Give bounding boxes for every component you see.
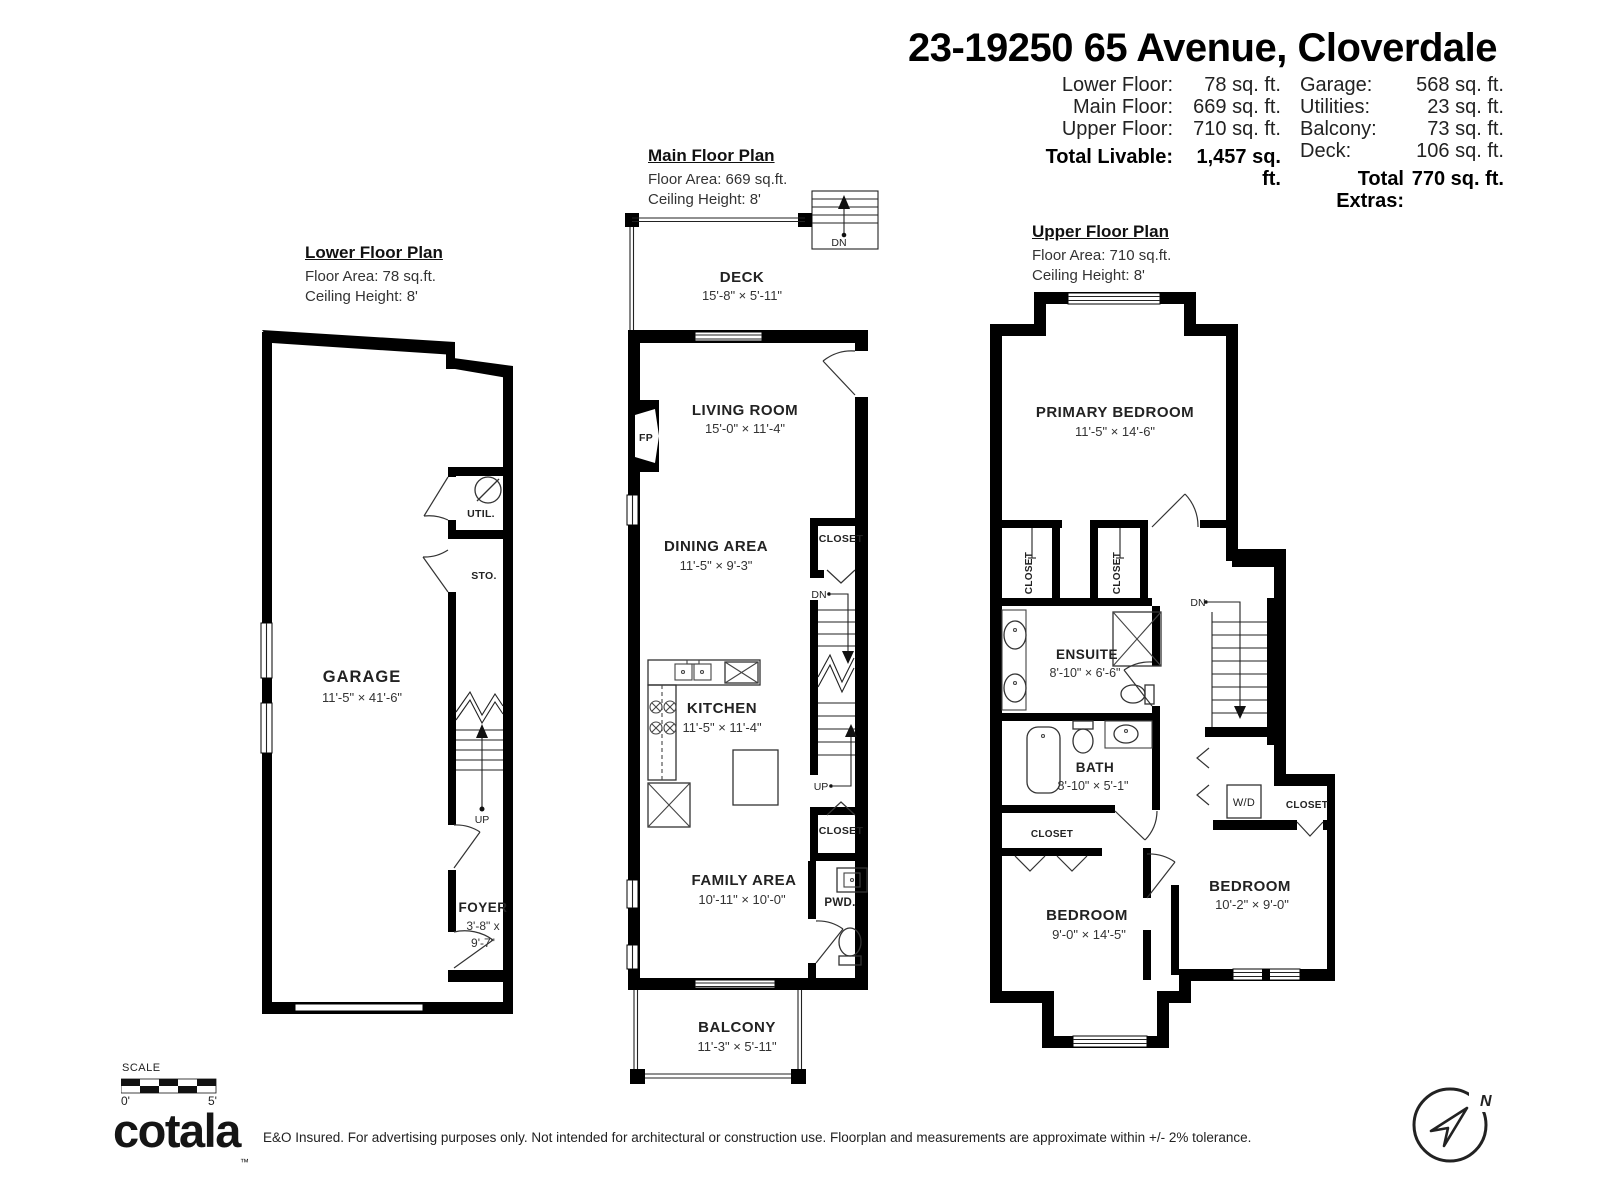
svg-text:9'-7": 9'-7" [471, 936, 495, 950]
svg-text:8'-10" × 6'-6": 8'-10" × 6'-6" [1050, 666, 1121, 680]
sto-label: STO. [471, 570, 497, 582]
summary-row: Balcony:73 sq. ft. [1300, 118, 1504, 140]
lower-plan-title: Lower Floor Plan [305, 243, 443, 263]
foyer-label: FOYER [458, 900, 507, 915]
svg-text:11'-3" × 5'-11": 11'-3" × 5'-11" [697, 1039, 777, 1054]
water-heater-icon [475, 477, 501, 503]
balcony-label: BALCONY [698, 1019, 776, 1036]
util-label: UTIL. [467, 508, 495, 520]
living-room-label: LIVING ROOM [692, 402, 798, 419]
compass-north-label: N [1480, 1093, 1492, 1110]
scale-bar [121, 1077, 221, 1095]
wd-label: W/D [1233, 797, 1255, 809]
main-floor-plan: DN FP [615, 185, 885, 1100]
svg-text:10'-2" × 9'-0": 10'-2" × 9'-0" [1215, 897, 1289, 912]
bedroom-left-label: BEDROOM [1046, 907, 1128, 924]
main-top-exterior-stairs: DN [812, 191, 878, 249]
deck-label: DECK [720, 269, 765, 286]
bath-label: BATH [1076, 760, 1115, 775]
lower-plan-header: Lower Floor Plan Floor Area: 78 sq.ft. C… [305, 243, 443, 307]
main-plan-title: Main Floor Plan [648, 146, 787, 166]
disclaimer-text: E&O Insured. For advertising purposes on… [263, 1130, 1313, 1145]
stairs-dn-label: DN [1190, 597, 1205, 609]
upper-plan-header: Upper Floor Plan Floor Area: 710 sq.ft. … [1032, 222, 1171, 286]
closet-c-label: CLOSET [1031, 829, 1073, 840]
svg-text:8'-10" × 5'-1": 8'-10" × 5'-1" [1058, 779, 1129, 793]
main-stairs [818, 592, 857, 788]
summary-row: Utilities:23 sq. ft. [1300, 96, 1504, 118]
total-livable-row: Total Livable:1,457 sq. ft. [1005, 146, 1281, 190]
svg-text:11'-5" × 11'-4": 11'-5" × 11'-4" [682, 720, 762, 735]
stairs-up-label: UP [475, 814, 490, 826]
svg-text:15'-8" × 5'-11": 15'-8" × 5'-11" [702, 288, 782, 303]
bedroom-right-label: BEDROOM [1209, 878, 1291, 895]
summary-row: Main Floor:669 sq. ft. [1005, 96, 1281, 118]
upper-plan-title: Upper Floor Plan [1032, 222, 1171, 242]
dining-area-label: DINING AREA [664, 538, 768, 555]
upper-floor-plan: W/D PRIMARY BEDROOM 11'-5" × 14'-6" CLOS… [985, 290, 1335, 1080]
svg-text:10'-11" × 10'-0": 10'-11" × 10'-0" [698, 892, 786, 907]
lower-floor-plan: GARAGE 11'-5" × 41'-6" UTIL. STO. UP FOY… [250, 320, 530, 1020]
family-area-label: FAMILY AREA [692, 872, 797, 889]
balcony-railing [630, 990, 806, 1084]
kitchen-fixtures [648, 660, 778, 827]
area-summary-extras: Garage:568 sq. ft. Utilities:23 sq. ft. … [1300, 74, 1504, 212]
cotala-logo: cotala™ [113, 1103, 249, 1167]
closet-b-label: CLOSET [1112, 552, 1123, 594]
closet-a-label: CLOSET [1024, 552, 1035, 594]
total-extras-row: Total Extras:770 sq. ft. [1300, 168, 1504, 212]
fireplace-label: FP [639, 432, 653, 444]
main-room-labels: DECK 15'-8" × 5'-11" LIVING ROOM 15'-0" … [664, 269, 864, 1054]
powder-room-label: PWD. [824, 897, 855, 909]
cooktop-burners-icon [650, 701, 676, 734]
stairs-dn-label: DN [811, 589, 826, 601]
svg-text:9'-0" × 14'-5": 9'-0" × 14'-5" [1052, 927, 1126, 942]
scale-label: SCALE [122, 1062, 161, 1074]
garage-dims: 11'-5" × 41'-6" [322, 690, 402, 705]
summary-row: Upper Floor:710 sq. ft. [1005, 118, 1281, 140]
lower-room-labels: GARAGE 11'-5" × 41'-6" UTIL. STO. UP FOY… [322, 508, 508, 950]
summary-row: Lower Floor:78 sq. ft. [1005, 74, 1281, 96]
stairs-up-label: UP [814, 781, 829, 793]
summary-row: Deck:106 sq. ft. [1300, 140, 1504, 162]
deck-stairs-dn-label: DN [831, 237, 846, 249]
page-title: 23-19250 65 Avenue, Cloverdale [908, 26, 1497, 71]
lower-stairs [456, 692, 503, 812]
svg-text:15'-0" × 11'-4": 15'-0" × 11'-4" [705, 421, 785, 436]
closet-upper-label: CLOSET [819, 533, 864, 545]
closet-lower-label: CLOSET [819, 825, 864, 837]
deck-railing [625, 213, 812, 330]
kitchen-label: KITCHEN [687, 700, 757, 717]
svg-text:3'-8" x: 3'-8" x [466, 919, 499, 933]
garage-label: GARAGE [323, 668, 401, 686]
primary-bedroom-label: PRIMARY BEDROOM [1036, 404, 1194, 421]
svg-text:11'-5" × 9'-3": 11'-5" × 9'-3" [680, 558, 753, 573]
trademark-symbol: ™ [240, 1157, 249, 1167]
fireplace-icon: FP [628, 400, 659, 472]
svg-text:11'-5" × 14'-6": 11'-5" × 14'-6" [1075, 424, 1155, 439]
ensuite-label: ENSUITE [1056, 647, 1118, 662]
area-summary-livable: Lower Floor:78 sq. ft. Main Floor:669 sq… [1005, 74, 1281, 190]
summary-row: Garage:568 sq. ft. [1300, 74, 1504, 96]
closet-d-label: CLOSET [1286, 800, 1328, 811]
compass-icon: N [1395, 1068, 1505, 1178]
